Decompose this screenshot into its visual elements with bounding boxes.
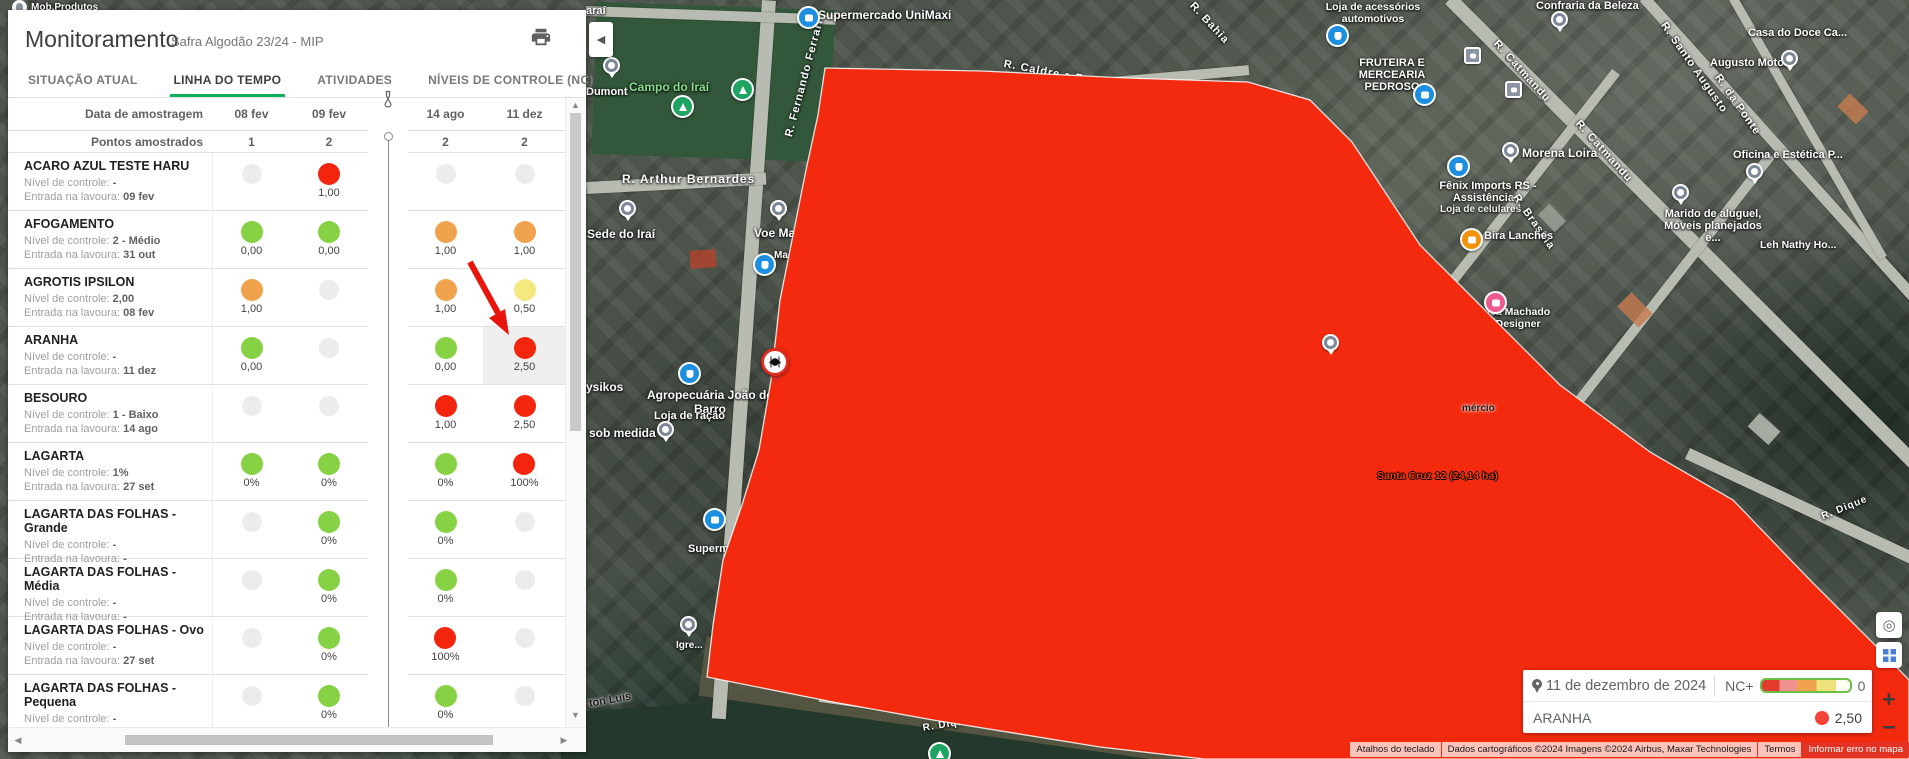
pest-name: BESOURO (24, 391, 212, 405)
plus-icon: + (1882, 686, 1895, 713)
map-attribution: Atalhos do teclado Dados cartográficos ©… (1350, 742, 1909, 757)
sample-cell[interactable]: 100% (408, 617, 483, 675)
store-marker[interactable] (678, 362, 701, 385)
poi-pin[interactable] (770, 200, 787, 223)
school-pin[interactable] (603, 57, 620, 80)
sample-cell[interactable]: 0% (290, 675, 368, 728)
nc-gradient-scale (1760, 678, 1852, 693)
sample-cell[interactable]: 0% (408, 443, 483, 501)
poi-pin[interactable] (1322, 334, 1339, 357)
info-date: 11 de dezembro de 2024 (1546, 678, 1706, 694)
sample-cell[interactable]: 0,00 (213, 327, 290, 385)
pest-name: LAGARTA (24, 449, 212, 463)
timeline-table: Data de amostragem 08 fev 09 fev 14 ago … (8, 98, 566, 728)
poi-pin[interactable] (1781, 50, 1798, 73)
table-row: LAGARTA DAS FOLHAS - Pequena Nível de co… (8, 675, 566, 728)
sample-cell[interactable] (483, 617, 566, 675)
store-marker[interactable] (1326, 24, 1349, 47)
red-status-dot (1815, 711, 1829, 725)
poi-pin[interactable] (1672, 184, 1689, 207)
bus-stop-icon[interactable] (1505, 81, 1522, 98)
points-count: 2 (290, 131, 368, 153)
sample-cell[interactable]: 0,00 (290, 211, 368, 269)
table-row: ACARO AZUL TESTE HARU Nível de controle:… (8, 153, 566, 211)
application-flask-icon (379, 90, 397, 108)
monitoring-panel: Monitoramento Safra Algodão 23/24 - MIP … (8, 10, 586, 752)
vertical-scroll-thumb[interactable] (570, 113, 581, 431)
table-row: ARANHA Nível de controle: - Entrada na l… (8, 327, 566, 385)
status-dot (241, 453, 263, 475)
sample-cell[interactable]: 0,00 (408, 327, 483, 385)
table-row: AFOGAMENTO Nível de controle: 2 - Médio … (8, 211, 566, 269)
beauty-marker[interactable] (1484, 291, 1507, 314)
sample-cell[interactable]: 1,00 (408, 211, 483, 269)
table-row: AGROTIS IPSILON Nível de controle: 2,00 … (8, 269, 566, 327)
table-row: BESOURO Nível de controle: 1 - Baixo Ent… (8, 385, 566, 443)
divider (1714, 675, 1715, 697)
status-dot (318, 163, 340, 185)
status-dot (242, 512, 262, 532)
sample-cell[interactable]: 0% (290, 443, 368, 501)
points-count: 2 (483, 131, 566, 153)
sample-cell[interactable] (483, 675, 566, 728)
sample-cell[interactable]: 1,00 (290, 153, 368, 211)
col-header-date: 08 fev (213, 98, 290, 131)
keyboard-shortcuts-link[interactable]: Atalhos do teclado (1350, 742, 1440, 757)
sample-cell[interactable]: 1,00 (213, 269, 290, 327)
col-header-date: 11 dez (483, 98, 566, 131)
sample-cell[interactable] (213, 385, 290, 443)
supermarket-marker[interactable] (703, 508, 726, 531)
status-dot (241, 337, 263, 359)
status-dot (513, 453, 535, 475)
zoom-out-button[interactable]: − (1876, 714, 1902, 740)
scroll-right-arrow[interactable]: ▶ (556, 728, 572, 752)
status-dot (435, 685, 457, 707)
status-dot (436, 164, 456, 184)
sample-cell[interactable] (290, 327, 368, 385)
panel-collapse-button[interactable]: ◀ (589, 22, 613, 57)
status-dot (241, 221, 263, 243)
tab-situacao-atual[interactable]: SITUAÇÃO ATUAL (24, 63, 142, 97)
tree-marker[interactable] (731, 78, 754, 101)
nc-scale-value: 0 (1858, 678, 1866, 694)
poi-pin[interactable] (1502, 142, 1519, 165)
zoom-in-button[interactable]: + (1876, 686, 1902, 712)
status-dot (435, 569, 457, 591)
chevron-left-icon: ◀ (597, 33, 605, 46)
bug-icon (761, 348, 789, 376)
status-dot (242, 628, 262, 648)
store-marker[interactable] (1447, 155, 1470, 178)
map-data-credit: Dados cartográficos ©2024 Imagens ©2024 … (1442, 742, 1758, 757)
target-icon: ◎ (1882, 616, 1895, 634)
sample-cell[interactable] (213, 501, 290, 559)
tab-linha-do-tempo[interactable]: LINHA DO TEMPO (170, 63, 286, 97)
scroll-up-arrow[interactable]: ▲ (566, 98, 585, 112)
pest-name: ARANHA (24, 333, 212, 347)
points-count: 1 (213, 131, 290, 153)
status-dot (515, 628, 535, 648)
sample-cell[interactable] (408, 153, 483, 211)
status-dot (319, 280, 339, 300)
status-dot (241, 279, 263, 301)
pest-name: LAGARTA DAS FOLHAS - Grande (24, 507, 212, 535)
terms-link[interactable]: Termos (1758, 742, 1801, 757)
status-dot (242, 396, 262, 416)
status-dot (515, 570, 535, 590)
sampling-point-bug-pin[interactable] (761, 348, 791, 390)
sample-cell[interactable]: 0,00 (213, 211, 290, 269)
status-dot (319, 338, 339, 358)
sample-cell[interactable]: 1,00 (408, 385, 483, 443)
map-info-card: 11 de dezembro de 2024 NC+ 0 ARANHA 2,50 (1523, 670, 1872, 733)
col-header-date: 14 ago (408, 98, 483, 131)
status-dot (318, 221, 340, 243)
points-count: 2 (408, 131, 483, 153)
sample-cell[interactable]: 0% (408, 675, 483, 728)
poi-pin[interactable] (619, 200, 636, 223)
status-dot (435, 511, 457, 533)
pest-name: LAGARTA DAS FOLHAS - Pequena (24, 681, 212, 709)
status-dot (319, 396, 339, 416)
sample-cell[interactable] (483, 501, 566, 559)
tree-marker[interactable] (928, 742, 951, 759)
application-timeline-divider (388, 140, 389, 728)
pest-name: ACARO AZUL TESTE HARU (24, 159, 212, 173)
page-title: Monitoramento (25, 26, 178, 53)
status-dot (435, 221, 457, 243)
pest-name: LAGARTA DAS FOLHAS - Média (24, 565, 212, 593)
sample-cell[interactable]: 0% (408, 559, 483, 617)
col-header-sampled-points: Pontos amostrados (8, 131, 213, 153)
sample-cell[interactable] (483, 153, 566, 211)
supermarket-marker[interactable] (797, 6, 820, 29)
status-dot (435, 337, 457, 359)
my-location-button[interactable]: ◎ (1876, 612, 1902, 638)
table-row: LAGARTA DAS FOLHAS - Grande Nível de con… (8, 501, 566, 559)
sample-cell[interactable] (213, 675, 290, 728)
church-pin[interactable] (680, 616, 697, 639)
sample-cell[interactable]: 0% (290, 559, 368, 617)
status-dot (318, 627, 340, 649)
horizontal-scrollbar[interactable]: ◀ ▶ (8, 727, 586, 752)
bus-stop-icon[interactable] (1464, 47, 1481, 64)
status-dot (242, 570, 262, 590)
status-dot (318, 569, 340, 591)
pest-name: AFOGAMENTO (24, 217, 212, 231)
poi-pin[interactable] (1551, 11, 1568, 34)
print-button[interactable] (530, 26, 552, 48)
sample-cell[interactable]: 0% (213, 443, 290, 501)
page-subtitle: Safra Algodão 23/24 - MIP (171, 34, 323, 49)
sample-cell[interactable] (213, 559, 290, 617)
store-marker[interactable] (753, 253, 776, 276)
supermarket-marker[interactable] (1413, 83, 1436, 106)
park-pin-marker[interactable] (671, 95, 694, 118)
pest-name: LAGARTA DAS FOLHAS - Ovo (24, 623, 212, 637)
status-dot (318, 685, 340, 707)
status-dot (514, 337, 536, 359)
status-dot (435, 453, 457, 475)
status-dot (435, 279, 457, 301)
restaurant-marker[interactable] (1460, 228, 1483, 251)
grid-icon (1883, 649, 1896, 662)
field-area-label: Santa Cruz 12 (24,14 ha) (1377, 470, 1498, 482)
species-name: ARANHA (1533, 710, 1591, 726)
poi-pin[interactable] (657, 421, 674, 444)
pest-name: AGROTIS IPSILON (24, 275, 212, 289)
status-dot (514, 221, 536, 243)
vertical-scrollbar[interactable]: ▲ ▼ (565, 98, 585, 728)
status-dot (318, 511, 340, 533)
status-dot (242, 164, 262, 184)
tab-bar: SITUAÇÃO ATUAL LINHA DO TEMPO ATIVIDADES… (8, 62, 586, 98)
table-row: LAGARTA Nível de controle: 1% Entrada na… (8, 443, 566, 501)
horizontal-scroll-thumb[interactable] (125, 735, 493, 745)
status-dot (514, 279, 536, 301)
sample-cell[interactable] (213, 153, 290, 211)
sample-cell[interactable] (483, 559, 566, 617)
scroll-down-arrow[interactable]: ▼ (566, 708, 585, 722)
sample-cell-selected[interactable]: 2,50 (483, 327, 566, 385)
nc-label: NC+ (1725, 678, 1753, 694)
status-dot (435, 395, 457, 417)
map-label: mércio (1462, 403, 1495, 414)
sample-cell[interactable]: 1,00 (483, 211, 566, 269)
tiles-grid-button[interactable] (1876, 642, 1902, 668)
status-dot (434, 627, 456, 649)
sample-cell[interactable]: 0% (290, 501, 368, 559)
status-dot (515, 512, 535, 532)
sample-cell[interactable] (213, 617, 290, 675)
col-header-sampling-date: Data de amostragem (8, 98, 213, 131)
sample-cell[interactable]: 2,50 (483, 385, 566, 443)
status-dot (514, 395, 536, 417)
table-row: LAGARTA DAS FOLHAS - Ovo Nível de contro… (8, 617, 566, 675)
sample-cell[interactable] (290, 385, 368, 443)
species-value: 2,50 (1835, 710, 1862, 726)
status-dot (515, 164, 535, 184)
report-error-link[interactable]: Informar erro no mapa (1802, 742, 1909, 757)
table-row: LAGARTA DAS FOLHAS - Média Nível de cont… (8, 559, 566, 617)
status-dot (318, 453, 340, 475)
sample-cell[interactable]: 0,50 (483, 269, 566, 327)
tab-niveis-de-controle[interactable]: NÍVEIS DE CONTROLE (NC) (424, 63, 598, 97)
scroll-left-arrow[interactable]: ◀ (10, 728, 26, 752)
sample-cell[interactable] (290, 269, 368, 327)
sample-cell[interactable]: 0% (408, 501, 483, 559)
minus-icon: − (1882, 714, 1895, 741)
printer-icon (530, 26, 552, 48)
col-header-date: 09 fev (290, 98, 368, 131)
status-dot (242, 686, 262, 706)
sample-cell[interactable]: 100% (483, 443, 566, 501)
sample-cell[interactable]: 0% (290, 617, 368, 675)
sample-cell[interactable]: 1,00 (408, 269, 483, 327)
poi-pin[interactable] (1746, 163, 1763, 186)
status-dot (515, 686, 535, 706)
location-pin-icon (1532, 679, 1542, 693)
